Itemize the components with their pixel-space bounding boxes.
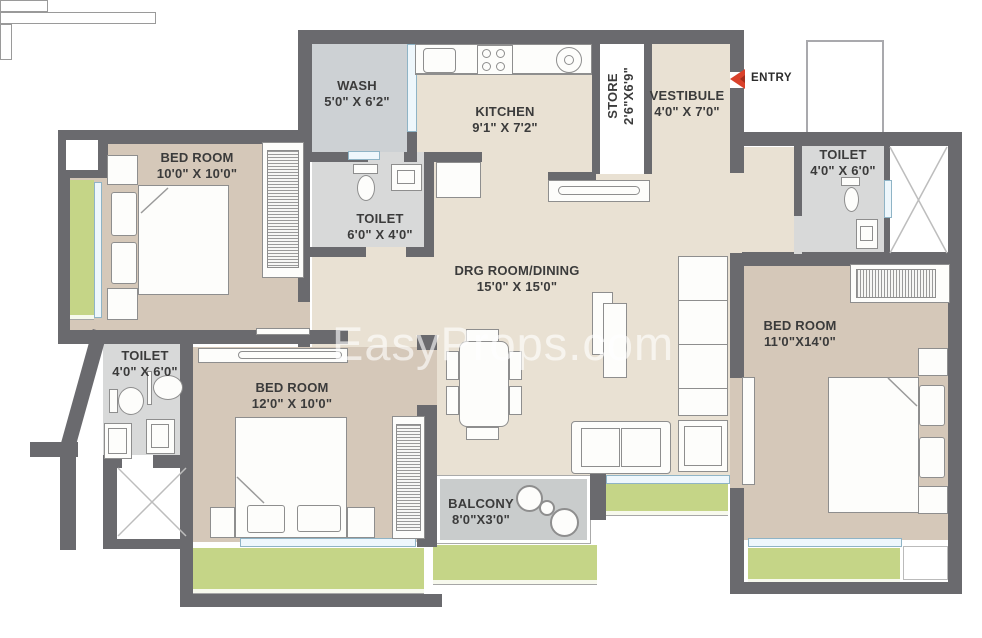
toilet-mid-cistern <box>353 164 378 174</box>
wall-top <box>298 30 744 44</box>
room-name: BED ROOM <box>740 318 860 334</box>
stove-burner <box>482 49 491 58</box>
planter-strip-bottom-right <box>748 548 900 584</box>
stove-burner <box>496 62 505 71</box>
pillow <box>297 505 341 532</box>
entry-arrow-icon <box>730 69 745 89</box>
room-label-kitchen: KITCHEN 9'1" X 7'2" <box>445 104 565 136</box>
room-dims: 5'0" X 6'2" <box>307 94 407 110</box>
shelf <box>256 328 310 335</box>
toilet-mid-bowl <box>357 175 375 201</box>
toilet-bl-cabinet-inner <box>108 428 127 454</box>
entry-label: ENTRY <box>751 72 792 84</box>
window-bedroom-tl-left <box>94 182 102 318</box>
window-toilet-mid <box>348 151 380 160</box>
planter-pot <box>550 508 579 537</box>
toilet-tr-bowl <box>844 187 859 212</box>
pillow <box>247 505 285 533</box>
room-name: STORE <box>605 36 621 156</box>
room-label-toilet-bottom-left: TOILET 4'0" X 6'0" <box>95 348 195 380</box>
room-label-bedroom-top-left: BED ROOM 10'0" X 10'0" <box>137 150 257 182</box>
room-dims: 6'0" X 4'0" <box>330 227 430 243</box>
window-balcony-slider <box>0 12 156 24</box>
door-opening-bedroom-tl <box>298 302 310 330</box>
room-name: VESTIBULE <box>637 88 737 104</box>
room-name: DRG ROOM/DINING <box>437 263 597 279</box>
room-name: TOILET <box>795 147 891 163</box>
room-dims: 15'0" X 15'0" <box>437 279 597 295</box>
toilet-bl-shower-inner <box>151 424 169 448</box>
shaft-top-right <box>890 146 948 254</box>
bed-mattress <box>138 185 229 295</box>
opening-vestibule-drg <box>730 173 742 253</box>
nightstand <box>918 486 948 514</box>
pillow <box>919 385 945 426</box>
wall-bottom-left <box>180 594 442 607</box>
window-drg-bottom <box>606 475 730 484</box>
room-dims: 4'0" X 6'0" <box>795 163 891 179</box>
wall-toilet-mid-bottom-b <box>406 247 434 257</box>
passage-floor <box>742 147 794 255</box>
duct-top-left <box>66 140 98 170</box>
window-bedroom-b-bottom <box>240 538 416 547</box>
pillow <box>111 242 137 284</box>
room-dims: 9'1" X 7'2" <box>445 120 565 136</box>
room-label-toilet-top-right: TOILET 4'0" X 6'0" <box>795 147 891 179</box>
room-dims: 4'0" X 7'0" <box>637 104 737 120</box>
toilet-bl-bowl <box>118 387 144 415</box>
wall-store-bottom-stub <box>548 172 596 180</box>
room-label-store: STORE 2'6"X6'9" <box>605 36 637 156</box>
sofa-divider <box>679 344 727 345</box>
room-name: BED ROOM <box>137 150 257 166</box>
wall-bedroom-right-left-b <box>730 488 744 594</box>
room-label-bedroom-right: BED ROOM 11'0"X14'0" <box>740 318 860 350</box>
window-bedroom-right-bottom <box>748 538 902 547</box>
kitchen-round-sink-drain <box>564 55 574 65</box>
room-name: BED ROOM <box>232 380 352 396</box>
room-label-vestibule: VESTIBULE 4'0" X 7'0" <box>637 88 737 120</box>
planter-strip-below-balcony <box>433 545 597 585</box>
window-store-top <box>0 0 48 12</box>
wall-vestibule-right-a <box>730 30 744 72</box>
room-name: WASH <box>307 78 407 94</box>
stove-burner <box>496 49 505 58</box>
window-bottom-right-side <box>0 24 12 60</box>
room-name: TOILET <box>330 211 430 227</box>
side-table-inner <box>684 426 722 466</box>
wardrobe-rail <box>267 150 299 268</box>
sofa-divider <box>679 388 727 389</box>
planter-strip-left <box>67 180 94 320</box>
sofa-cushion <box>621 428 661 467</box>
shaft-bottom-left <box>117 467 187 537</box>
room-name: KITCHEN <box>445 104 565 120</box>
wall-toilet-mid-bottom-a <box>306 247 366 257</box>
stove-burner <box>482 62 491 71</box>
wall-bottom-right <box>730 582 962 594</box>
corner-box-bottom-right <box>903 546 948 580</box>
room-dims: 12'0" X 10'0" <box>232 396 352 412</box>
nightstand <box>918 348 948 376</box>
toilet-mid-washbasin-inner <box>397 170 415 184</box>
room-label-toilet-mid: TOILET 6'0" X 4'0" <box>330 211 430 243</box>
room-dims: 11'0"X14'0" <box>740 334 860 350</box>
room-dims: 8'0"X3'0" <box>431 512 531 528</box>
wall-store-left <box>592 44 600 174</box>
wall-wash-kitchen-lower <box>407 132 417 154</box>
wall-shaft-bl-left <box>103 455 117 549</box>
room-label-drg-dining: DRG ROOM/DINING 15'0" X 15'0" <box>437 263 597 295</box>
dresser-top <box>238 351 342 359</box>
sofa-cushion <box>581 428 620 467</box>
kitchen-sink <box>423 48 456 73</box>
room-label-wash: WASH 5'0" X 6'2" <box>307 78 407 110</box>
door-opening-toilet-tr <box>794 216 802 254</box>
wash-counter-basin <box>558 186 640 195</box>
nightstand <box>210 507 235 538</box>
wardrobe-rail <box>856 269 936 298</box>
toilet-tr-washbasin-inner <box>860 226 873 241</box>
dining-chair <box>466 427 499 440</box>
window-toilet-tr <box>884 180 892 218</box>
nightstand <box>107 155 138 185</box>
wall-top-right <box>730 132 962 146</box>
wall-balcony-right-stub <box>590 468 606 520</box>
nightstand <box>347 507 375 538</box>
pillow <box>919 437 945 478</box>
planter-strip-bottom-left <box>193 548 424 594</box>
dining-chair <box>446 386 459 415</box>
watermark: EasyProps.com <box>332 316 674 371</box>
room-dims: 2'6"X6'9" <box>621 36 637 156</box>
door-leaf <box>742 377 755 485</box>
floor-plan: WASH 5'0" X 6'2" KITCHEN 9'1" X 7'2" STO… <box>0 0 982 638</box>
wardrobe-rail <box>396 424 421 531</box>
room-dims: 4'0" X 6'0" <box>95 364 195 380</box>
room-dims: 10'0" X 10'0" <box>137 166 257 182</box>
pillow <box>111 192 137 236</box>
entry-arrow-notch <box>740 75 745 83</box>
sofa-divider <box>679 300 727 301</box>
wall-left-lower <box>60 455 76 550</box>
open-duct-top-right <box>806 40 884 134</box>
dining-chair <box>509 386 522 415</box>
nightstand <box>107 288 138 320</box>
room-label-balcony: BALCONY 8'0"X3'0" <box>431 496 531 528</box>
bed-mattress <box>828 377 919 513</box>
wall-right-outer <box>948 132 962 594</box>
planter-strip-center-right <box>606 483 728 516</box>
refrigerator <box>436 162 481 198</box>
room-name: TOILET <box>95 348 195 364</box>
toilet-bl-cistern <box>109 389 118 413</box>
room-name: BALCONY <box>431 496 531 512</box>
room-label-bedroom-bottom: BED ROOM 12'0" X 10'0" <box>232 380 352 412</box>
sofa-long <box>678 256 728 416</box>
